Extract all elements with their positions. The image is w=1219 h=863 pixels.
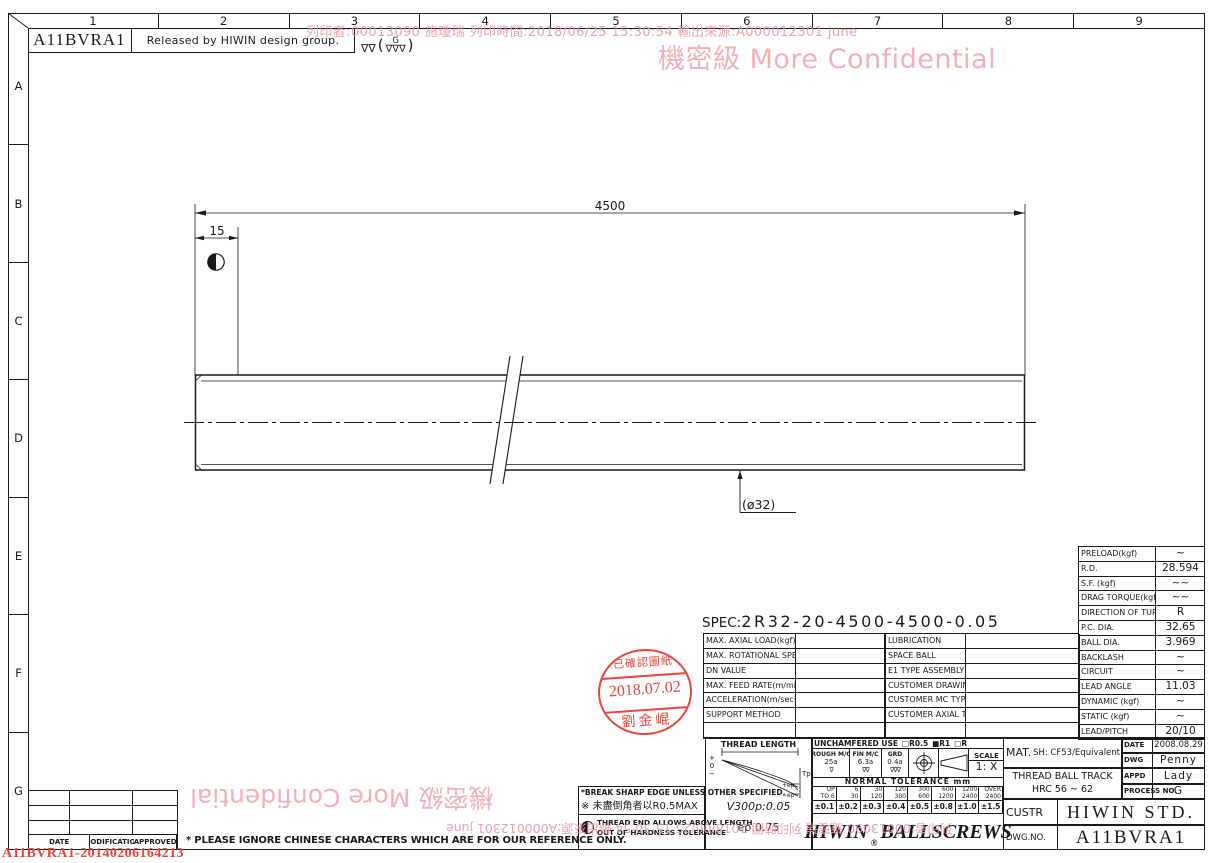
tolerance-range-cell: OVER 2400 [979, 787, 1003, 800]
ballscrew-data-table: PRELOAD(kgf) ~ R.D. 28.594 S.F. (kgf) ∼∼… [1078, 546, 1205, 740]
data-table-label: P.C. DIA. [1079, 621, 1156, 636]
minus-sign: − [709, 770, 715, 778]
range-upper: 120 [871, 794, 882, 801]
revision-table: DATEMODIFICATIONAPPROVED [28, 790, 178, 850]
spec-row-value [966, 708, 1080, 723]
spec-row-label: SUPPORT METHOD [704, 708, 796, 723]
tolerance-value-cell: ±0.1 [813, 801, 837, 813]
data-table-value: ~ [1156, 547, 1205, 562]
border-row-cell: C [9, 263, 28, 380]
tp-label: Tp [802, 770, 811, 778]
border-row-cell: D [9, 380, 28, 497]
stamp-date: 2018.07.02 [599, 678, 690, 702]
thread-length-box: THREAD LENGTH + 0 − Tp +ep −ep V300p:0.0… [705, 737, 812, 850]
taper-cell [939, 749, 969, 777]
spec-row-label: CUSTOMER AXIAL TYPE [886, 708, 966, 723]
revision-row [29, 791, 177, 806]
data-table-value: ~ [1156, 710, 1205, 725]
tolerance-value-cell: ±1.5 [979, 801, 1003, 813]
travel-deviation-value: V300p:0.05 [706, 800, 811, 813]
tolerance-range-cell: 300 600 [908, 787, 932, 800]
border-column-ruler: 123456789 [28, 13, 1205, 28]
data-table-label-text: LEAD/PITCH [1081, 727, 1128, 736]
thread-end-icon [581, 821, 594, 834]
border-row-label: B [15, 197, 23, 211]
spec-row-label [886, 723, 966, 738]
drawing-no-cell: DWG.NO. A11BVRA1 [1003, 825, 1205, 850]
spec-row-label-text: LUBRICATION [888, 636, 941, 645]
drawing-sheet: 123456789 ABCDEFG A11BVRA1 Released by H… [0, 0, 1219, 863]
tolerance-range-cell: 120 300 [884, 787, 908, 800]
spec-row-label-text: CUSTOMER MC TYPE [888, 695, 966, 704]
border-column-label: 9 [1135, 14, 1142, 28]
unchamfered-option-r1: ■R1 [932, 739, 950, 748]
logo-product: BALLSCREWS [880, 821, 1011, 844]
logo-brand: HIWIN [804, 821, 867, 844]
document-id: A11BVRA1-20140206164213 [2, 846, 184, 862]
revision-row [29, 806, 177, 821]
concentricity-cell [909, 749, 939, 777]
data-table-value: ~ [1156, 665, 1205, 680]
border-column-cell: 5 [551, 14, 682, 28]
tolerance-range-cell: 600 1200 [932, 787, 956, 800]
border-row-label: C [14, 314, 22, 328]
dimension-end-length: 15 [196, 224, 238, 238]
spec-row-value [796, 634, 886, 649]
reference-note: * PLEASE IGNORE CHINESE CHARACTERS WHICH… [186, 835, 626, 846]
approver-label: APPD [1123, 769, 1153, 783]
material-label: MAT. [1006, 746, 1031, 759]
spec-row-label: ACCELERATION(m/sec²) [704, 693, 796, 708]
dimension-diameter: (ø32) [742, 497, 775, 512]
process-no-label: PROCESS NO. [1123, 785, 1153, 799]
spec-row-label-text: DN VALUE [706, 666, 746, 675]
border-row-label: A [15, 79, 23, 93]
hiwin-logo: HIWIN ® BALLSCREWS [813, 814, 1003, 851]
spec-row-label: LUBRICATION [886, 634, 966, 649]
date-label: DATE [1123, 738, 1153, 752]
drawing-code: A11BVRA1 [33, 30, 125, 50]
tolerance-range-header-row: UP TO 6 6 30 30 120 120 300 [813, 787, 1003, 801]
spec-row-label-text: MAX. FEED RATE(m/min) [706, 681, 796, 690]
normal-tolerance-header: NORMAL TOLERANCE mm [813, 778, 1003, 787]
tolerance-value-cell: ±0.8 [932, 801, 956, 813]
hardness-line2: HRC 56 ~ 62 [1032, 784, 1093, 796]
material-cell: MAT. SH: CF53/Equivalent [1003, 737, 1122, 768]
border-column-label: 2 [220, 14, 227, 28]
process-no-value: G [1153, 785, 1204, 797]
revision-cell [70, 806, 132, 820]
customer-label: CUSTR [1004, 800, 1058, 824]
border-column-cell: 6 [682, 14, 813, 28]
approver-cell: APPD Lady [1122, 768, 1205, 784]
spec-row-label: MAX. ROTATIONAL SPEED(rpm) [704, 649, 796, 664]
data-table-value: 11.03 [1156, 680, 1205, 695]
fin-mc-cell: FIN M/C 6.3a ∇∇ [850, 749, 882, 777]
data-table-label: S.F. (kgf) [1079, 577, 1156, 592]
data-table-label: DIRECTION OF TURN [1079, 606, 1156, 621]
spec-row-label: MAX. AXIAL LOAD(kgf) [704, 634, 796, 649]
border-column-label: 1 [89, 14, 96, 28]
spec-row-value [966, 664, 1080, 679]
hardness-cell: THREAD BALL TRACK HRC 56 ~ 62 [1003, 768, 1122, 799]
spec-row-label-text: CUSTOMER DRAWING NO. [888, 681, 966, 690]
customer-cell: CUSTR HIWIN STD. [1003, 799, 1205, 825]
spec-row-value [796, 649, 886, 664]
spec-label: SPEC: [702, 615, 741, 631]
material-value: SH: CF53/Equivalent [1033, 748, 1120, 758]
thread-length-diagram [706, 746, 813, 806]
unchamfered-row: UNCHAMFERED USE □R0.5 ■R1 □R [813, 738, 1003, 749]
data-table-label-text: DYNAMIC (kgf) [1081, 697, 1139, 706]
drafter-value: Penny [1153, 754, 1204, 766]
tolerance-range-cell: UP TO 6 [813, 787, 837, 800]
plus-sign: + [709, 754, 715, 762]
border-column-cell: 9 [1074, 14, 1205, 28]
data-table-label: PRELOAD(kgf) [1079, 547, 1156, 562]
tolerance-value-cell: ±0.5 [908, 801, 932, 813]
border-column-cell: 2 [159, 14, 290, 28]
unchamfered-option-r: □R [954, 739, 967, 748]
scale-value: 1: X [976, 761, 998, 773]
revision-cell [29, 821, 70, 835]
border-column-cell: 7 [813, 14, 944, 28]
border-row-cell: B [9, 145, 28, 262]
spec-row-value [796, 693, 886, 708]
spec-row-label: SPACE BALL [886, 649, 966, 664]
finish-grade-stack: G ∇∇∇ [386, 37, 406, 56]
revision-row [29, 821, 177, 836]
border-row-label: E [15, 549, 22, 563]
dimension-total-length: 4500 [560, 199, 660, 213]
date-cell: DATE 2008.08.29 [1122, 737, 1205, 753]
drafter-cell: DWG Penny [1122, 753, 1205, 769]
approver-value: Lady [1153, 770, 1204, 782]
roughness-row: ROUGH M/C 25a ∇ FIN M/C 6.3a ∇∇ GRD 0.4a… [813, 749, 1003, 778]
data-table-label: STATIC (kgf) [1079, 710, 1156, 725]
rough-mc-cell: ROUGH M/C 25a ∇ [813, 749, 850, 777]
border-column-label: 7 [874, 14, 881, 28]
border-column-cell: 4 [420, 14, 551, 28]
tolerance-value-cell: ±0.4 [884, 801, 908, 813]
data-table-label: LEAD ANGLE [1079, 680, 1156, 695]
tolerance-value-cell: ±0.2 [837, 801, 861, 813]
revision-cell [29, 806, 70, 820]
revision-cell [70, 791, 132, 805]
ep-plus-label: +ep [782, 782, 795, 789]
finish-paren-close: ) [408, 35, 414, 55]
tolerance-sign-stack: + 0 − [709, 754, 715, 778]
process-no-cell: PROCESS NO. G [1122, 784, 1205, 800]
border-column-label: 5 [612, 14, 619, 28]
spec-row-label: CUSTOMER DRAWING NO. [886, 679, 966, 694]
data-table-label: DYNAMIC (kgf) [1079, 695, 1156, 710]
spec-row-label-text: E1 TYPE ASSEMBLY METHOD [888, 666, 966, 675]
data-table-label-text: R.D. [1081, 564, 1098, 573]
scale-cell: SCALE 1: X [969, 749, 1004, 777]
border-row-cell: E [9, 498, 28, 615]
border-column-cell: 8 [943, 14, 1074, 28]
data-table-value: ~ [1156, 651, 1205, 666]
unchamfered-label: UNCHAMFERED USE [814, 739, 898, 748]
border-column-label: 4 [482, 14, 489, 28]
drafter-label: DWG [1123, 754, 1153, 768]
border-row-cell: G [9, 733, 28, 850]
range-upper: 2400 [962, 794, 977, 801]
spec-row-label-text: SUPPORT METHOD [706, 710, 781, 719]
finish-triple-marks-icon: ∇∇∇ [386, 45, 406, 55]
release-note: Released by HIWIN design group. [147, 34, 340, 47]
spec-row-label-text: SPACE BALL [888, 651, 936, 660]
operating-spec-table-right: LUBRICATION SPACE BALL E1 TYPE ASSEMBLY … [885, 633, 1079, 739]
taper-icon [939, 753, 969, 773]
data-table-value: 3.969 [1156, 636, 1205, 651]
tolerance-value-cell: ±0.3 [861, 801, 885, 813]
border-column-label: 6 [743, 14, 750, 28]
ep-minus-label: −ep [782, 792, 795, 799]
spec-row-label [704, 723, 796, 738]
data-table-value: ~ [1156, 695, 1205, 710]
unchamfered-option-r05: □R0.5 [902, 739, 928, 748]
surface-finish-symbol: ∇∇ ( G ∇∇∇ ) [361, 31, 414, 55]
spec-row-label-text: ACCELERATION(m/sec²) [706, 695, 796, 704]
spec-row-value [796, 723, 886, 738]
spec-row-value [966, 634, 1080, 649]
release-note-box: Released by HIWIN design group. [132, 28, 355, 53]
note-chamfer-cn: ※ 未盡倒角者以R0.5MAX [579, 797, 704, 815]
concentricity-icon [912, 751, 936, 775]
rough-mc-mark-icon: ∇ [829, 767, 832, 774]
spec-row-label-text: MAX. ROTATIONAL SPEED(rpm) [706, 651, 796, 660]
data-table-value: 28.594 [1156, 562, 1205, 577]
data-table-label: BALL DIA. [1079, 636, 1156, 651]
border-row-cell: A [9, 28, 28, 145]
spec-row-value [796, 664, 886, 679]
range-upper: TO 6 [821, 794, 835, 801]
range-upper: 1200 [938, 794, 953, 801]
data-table-label-text: S.F. (kgf) [1081, 579, 1116, 588]
data-table-value: 32.65 [1156, 621, 1205, 636]
spec-row-value [796, 679, 886, 694]
data-table-label: DRAG TORQUE(kgf-cm) [1079, 591, 1156, 606]
spec-row-label-text: MAX. AXIAL LOAD(kgf) [706, 636, 795, 645]
border-corner-cell [8, 13, 28, 28]
data-table-label-text: PRELOAD(kgf) [1081, 549, 1137, 558]
grd-mark-icon: ∇∇∇ [890, 767, 900, 774]
range-upper: 600 [918, 794, 929, 801]
tolerance-block: UNCHAMFERED USE □R0.5 ■R1 □R ROUGH M/C 2… [812, 737, 1003, 850]
spec-row-value [966, 693, 1080, 708]
tolerance-value-row: ±0.1±0.2±0.3±0.4±0.5±0.8±1.0±1.5 [813, 801, 1003, 814]
spec-row-label: E1 TYPE ASSEMBLY METHOD [886, 664, 966, 679]
border-row-ruler: ABCDEFG [8, 28, 28, 850]
drawing-no-value: A11BVRA1 [1058, 827, 1204, 849]
revision-cell [133, 821, 177, 835]
border-row-label: G [14, 784, 23, 798]
spec-row-label: CUSTOMER MC TYPE [886, 693, 966, 708]
spec-row-label-text: CUSTOMER AXIAL TYPE [888, 710, 966, 719]
data-table-label: BACKLASH [1079, 651, 1156, 666]
tolerance-range-cell: 30 120 [861, 787, 885, 800]
hardness-line1: THREAD BALL TRACK [1012, 771, 1112, 783]
zero-sign: 0 [710, 762, 714, 770]
data-table-label-text: BACKLASH [1081, 653, 1124, 662]
note-break-edge: *BREAK SHARP EDGE UNLESS OTHER SPECIFIED… [579, 787, 704, 797]
drawing-code-box: A11BVRA1 [28, 28, 132, 53]
fin-mc-mark-icon: ∇∇ [862, 767, 869, 774]
registered-mark-icon: ® [871, 838, 878, 851]
data-table-label-text: P.C. DIA. [1081, 623, 1114, 632]
border-column-cell: 1 [28, 14, 159, 28]
revision-cell [133, 791, 177, 805]
data-table-label-text: DRAG TORQUE(kgf-cm) [1081, 593, 1156, 602]
data-table-label: R.D. [1079, 562, 1156, 577]
revision-cell [133, 806, 177, 820]
spec-value: 2R32-20-4500-4500-0.05 [741, 612, 1000, 631]
tolerance-value-cell: ±1.0 [956, 801, 980, 813]
spec-row-value [796, 708, 886, 723]
border-column-label: 8 [1005, 14, 1012, 28]
data-table-label-text: STATIC (kgf) [1081, 712, 1129, 721]
data-table-label: CIRCUIT [1079, 665, 1156, 680]
data-table-value: R [1156, 606, 1205, 621]
border-column-label: 3 [351, 14, 358, 28]
grd-cell: GRD 0.4a ∇∇∇ [882, 749, 909, 777]
data-table-value: ∼∼ [1156, 577, 1205, 592]
finish-marks-icon: ∇∇ [361, 42, 376, 55]
border-row-label: F [15, 666, 22, 680]
operating-spec-table-left: MAX. AXIAL LOAD(kgf) MAX. ROTATIONAL SPE… [703, 633, 885, 739]
finish-paren-open: ( [378, 35, 384, 55]
border-column-cell: 3 [290, 14, 421, 28]
spec-line: SPEC: 2R32-20-4500-4500-0.05 [702, 612, 1001, 631]
data-table-label-text: CIRCUIT [1081, 667, 1113, 676]
data-table-label-text: BALL DIA. [1081, 638, 1120, 647]
tolerance-range-cell: 1200 2400 [956, 787, 980, 800]
spec-row-label: DN VALUE [704, 664, 796, 679]
range-upper: 30 [851, 794, 859, 801]
data-table-label-text: DIRECTION OF TURN [1081, 608, 1156, 617]
drawing-no-label: DWG.NO. [1004, 826, 1058, 849]
spec-row-value [966, 723, 1080, 738]
data-table-label-text: LEAD ANGLE [1081, 682, 1132, 691]
date-value: 2008.08.29 [1153, 740, 1204, 750]
ep-value: ep:0.75 [706, 821, 811, 834]
spec-row-label: MAX. FEED RATE(m/min) [704, 679, 796, 694]
tolerance-range-cell: 6 30 [837, 787, 861, 800]
range-upper: 2400 [986, 794, 1001, 801]
revision-cell [70, 821, 132, 835]
customer-value: HIWIN STD. [1058, 802, 1204, 823]
range-upper: 300 [895, 794, 906, 801]
revision-cell [29, 791, 70, 805]
spec-row-value [966, 679, 1080, 694]
title-block-info: MAT. SH: CF53/Equivalent THREAD BALL TRA… [1003, 737, 1205, 850]
border-row-cell: F [9, 615, 28, 732]
data-table-value: ∼∼ [1156, 591, 1205, 606]
border-row-label: D [14, 431, 23, 445]
spec-row-value [966, 649, 1080, 664]
